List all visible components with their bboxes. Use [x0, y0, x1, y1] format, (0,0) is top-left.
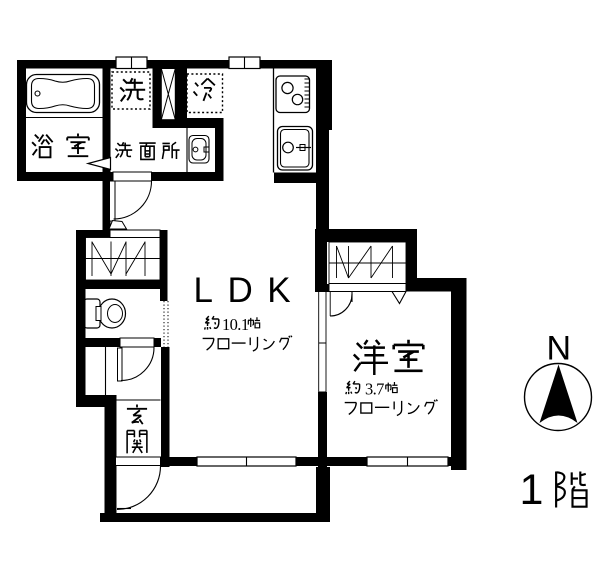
svg-text:LDK: LDK: [194, 271, 306, 310]
svg-text:3.7: 3.7: [365, 380, 384, 399]
svg-text:N: N: [547, 330, 572, 368]
svg-text:1: 1: [520, 466, 544, 514]
svg-text:10.1: 10.1: [222, 315, 249, 334]
